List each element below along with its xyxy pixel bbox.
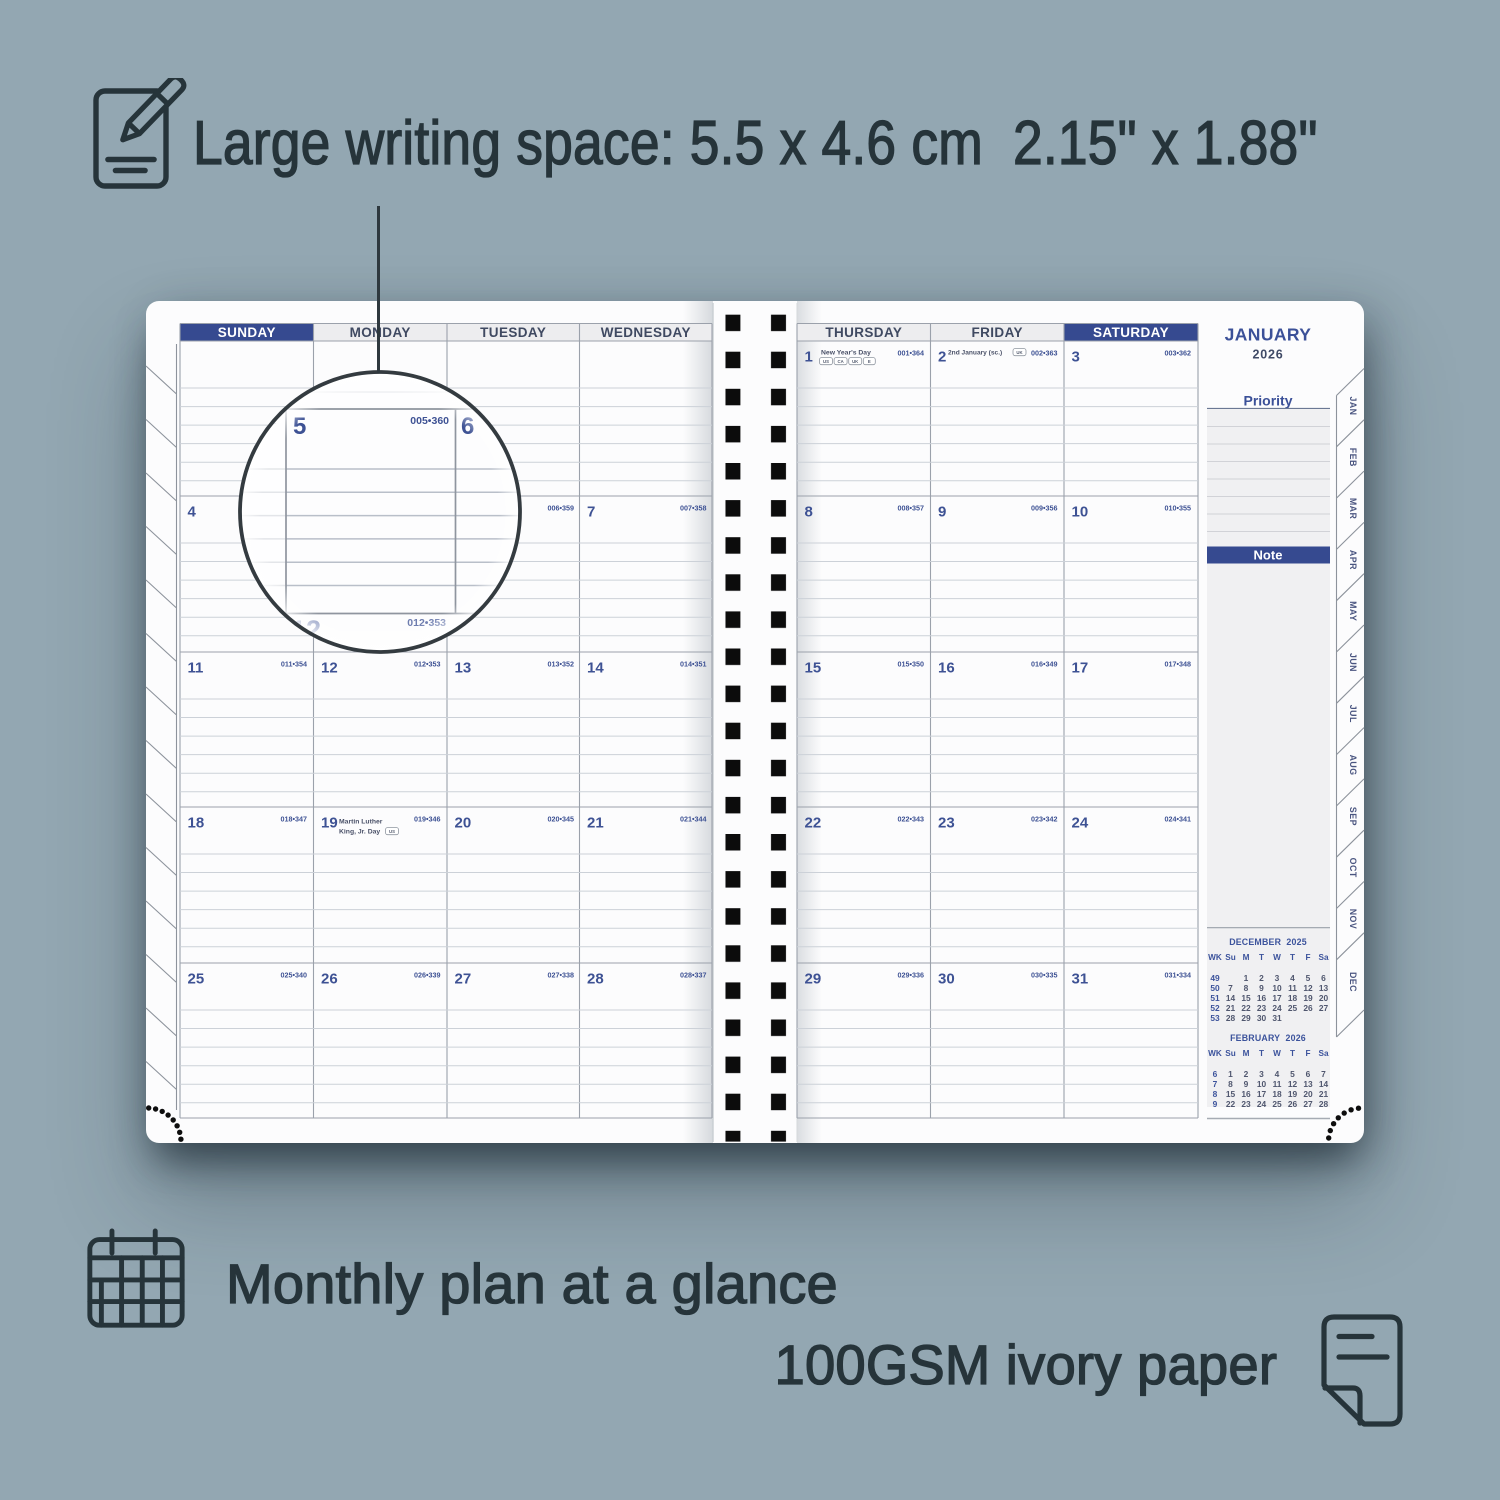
svg-text:010•355: 010•355 (1164, 504, 1191, 513)
svg-text:2nd January (sc.): 2nd January (sc.) (948, 350, 1002, 357)
svg-text:027•338: 027•338 (547, 971, 574, 980)
svg-text:021•344: 021•344 (680, 815, 707, 824)
svg-text:018•347: 018•347 (280, 815, 307, 824)
svg-text:NOV: NOV (1348, 909, 1358, 930)
svg-text:013•352: 013•352 (547, 660, 574, 669)
svg-text:016•349: 016•349 (1031, 660, 1058, 669)
svg-text:Martin Luther: Martin Luther (339, 819, 383, 826)
svg-text:015•350: 015•350 (897, 660, 924, 669)
svg-text:18: 18 (188, 815, 205, 832)
svg-text:MAY: MAY (1348, 601, 1358, 621)
svg-text:UK: UK (1016, 350, 1023, 355)
svg-text:023•342: 023•342 (1031, 815, 1058, 824)
svg-text:30: 30 (938, 971, 955, 988)
svg-text:24: 24 (1072, 815, 1089, 832)
svg-text:011•354: 011•354 (281, 660, 307, 669)
svg-text:1: 1 (805, 349, 813, 366)
svg-text:MONDAY: MONDAY (350, 325, 411, 340)
svg-text:007•358: 007•358 (680, 504, 707, 513)
svg-text:024•341: 024•341 (1164, 815, 1191, 824)
svg-text:DEC: DEC (1348, 972, 1358, 992)
svg-text:19: 19 (321, 815, 338, 832)
svg-text:001•364: 001•364 (897, 349, 924, 358)
svg-text:028•337: 028•337 (680, 971, 707, 980)
svg-text:23: 23 (938, 815, 955, 832)
svg-text:SATURDAY: SATURDAY (1093, 325, 1169, 340)
svg-text:21: 21 (587, 815, 604, 832)
svg-text:012•353: 012•353 (414, 660, 441, 669)
svg-text:DECEMBER 2025: DECEMBER 2025 (1229, 937, 1307, 947)
svg-text:020•345: 020•345 (547, 815, 574, 824)
svg-text:15: 15 (805, 660, 822, 677)
svg-text:King, Jr. Day: King, Jr. Day (339, 829, 380, 836)
svg-text:SEP: SEP (1348, 807, 1358, 826)
svg-text:026•339: 026•339 (414, 971, 441, 980)
svg-text:22: 22 (805, 815, 822, 832)
svg-text:FEBRUARY 2026: FEBRUARY 2026 (1230, 1033, 1306, 1043)
svg-text:US: US (823, 359, 829, 364)
svg-text:017•348: 017•348 (1164, 660, 1191, 669)
svg-text:Priority: Priority (1243, 393, 1292, 409)
svg-text:JUL: JUL (1348, 705, 1358, 723)
svg-text:26: 26 (321, 971, 338, 988)
svg-text:025•340: 025•340 (280, 971, 307, 980)
svg-text:UK: UK (852, 359, 859, 364)
svg-text:APR: APR (1348, 550, 1358, 570)
svg-text:014•351: 014•351 (680, 660, 707, 669)
svg-text:11: 11 (188, 660, 204, 677)
svg-text:2: 2 (938, 349, 946, 366)
svg-text:022•343: 022•343 (897, 815, 924, 824)
svg-text:E: E (868, 359, 871, 364)
svg-text:New Year's Day: New Year's Day (821, 350, 871, 357)
svg-text:17: 17 (1072, 660, 1089, 677)
svg-text:AUG: AUG (1348, 755, 1358, 776)
svg-text:2026: 2026 (1252, 348, 1283, 362)
svg-text:MAR: MAR (1348, 498, 1358, 520)
svg-text:9: 9 (938, 504, 946, 521)
svg-text:28: 28 (587, 971, 604, 988)
svg-text:US: US (389, 829, 395, 834)
svg-text:13: 13 (455, 660, 472, 677)
svg-text:JAN: JAN (1348, 396, 1358, 415)
svg-text:CA: CA (837, 359, 843, 364)
svg-text:25: 25 (188, 971, 205, 988)
svg-text:OCT: OCT (1348, 858, 1358, 878)
svg-text:FEB: FEB (1348, 448, 1358, 467)
svg-text:JANUARY: JANUARY (1225, 325, 1312, 345)
svg-text:4: 4 (188, 504, 197, 521)
svg-text:006•359: 006•359 (547, 504, 574, 513)
svg-text:31: 31 (1072, 971, 1089, 988)
svg-text:TUESDAY: TUESDAY (480, 325, 546, 340)
svg-text:16: 16 (938, 660, 955, 677)
svg-text:12: 12 (321, 660, 338, 677)
svg-text:THURSDAY: THURSDAY (825, 325, 902, 340)
svg-text:002•363: 002•363 (1031, 349, 1058, 358)
svg-text:003•362: 003•362 (1164, 349, 1191, 358)
svg-text:8: 8 (805, 504, 813, 521)
svg-text:10: 10 (1072, 504, 1089, 521)
svg-text:7: 7 (587, 504, 595, 521)
svg-text:008•357: 008•357 (897, 504, 924, 513)
svg-text:019•346: 019•346 (414, 815, 441, 824)
svg-text:29: 29 (805, 971, 822, 988)
svg-text:009•356: 009•356 (1031, 504, 1058, 513)
svg-text:27: 27 (455, 971, 472, 988)
svg-text:030•335: 030•335 (1031, 971, 1058, 980)
svg-text:20: 20 (455, 815, 472, 832)
svg-text:FRIDAY: FRIDAY (971, 325, 1022, 340)
svg-text:031•334: 031•334 (1164, 971, 1191, 980)
svg-text:029•336: 029•336 (897, 971, 924, 980)
svg-text:JUN: JUN (1348, 653, 1358, 672)
svg-text:SUNDAY: SUNDAY (218, 325, 276, 340)
svg-text:3: 3 (1072, 349, 1080, 366)
svg-text:14: 14 (587, 660, 604, 677)
svg-text:WEDNESDAY: WEDNESDAY (601, 325, 691, 340)
svg-text:Note: Note (1254, 548, 1283, 563)
